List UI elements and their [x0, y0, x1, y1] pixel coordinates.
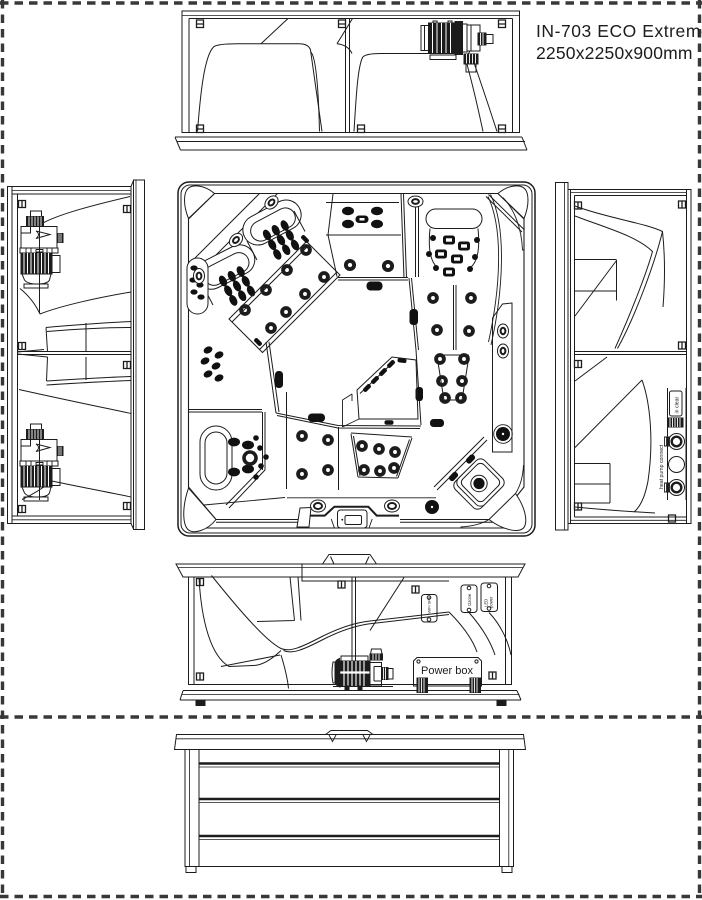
- svg-text:in clear: in clear: [675, 397, 681, 414]
- svg-text:heat pump connect: heat pump connect: [659, 444, 665, 489]
- svg-text:IN-703 ECO Extreme: IN-703 ECO Extreme: [536, 21, 702, 41]
- svg-text:Ozone: Ozone: [467, 593, 472, 606]
- svg-text:WiFi SPA: WiFi SPA: [427, 596, 432, 613]
- svg-text:2250x2250x900mm: 2250x2250x900mm: [536, 43, 693, 63]
- svg-text:power: power: [489, 596, 494, 608]
- svg-text:Power box: Power box: [421, 665, 473, 677]
